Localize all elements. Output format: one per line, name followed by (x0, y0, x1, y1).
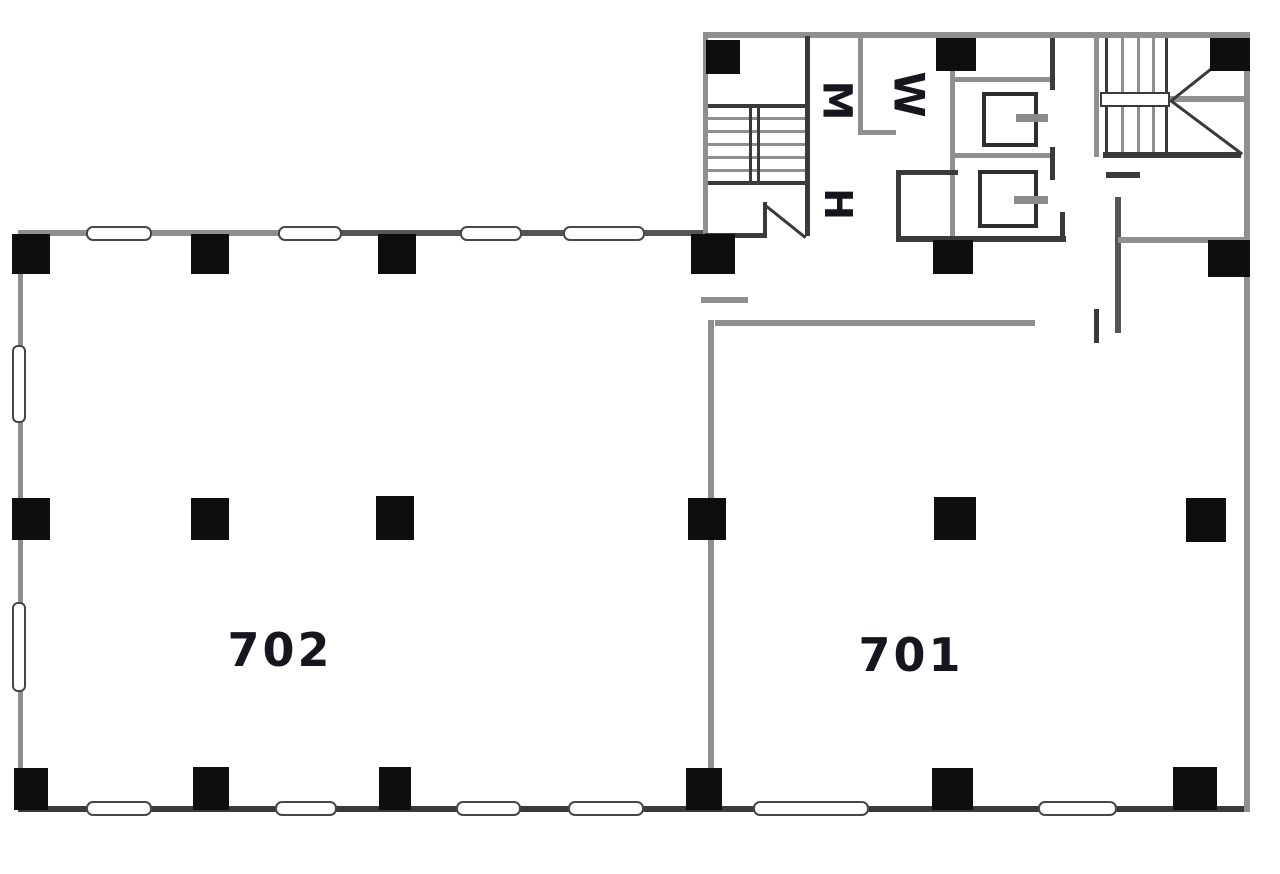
wall-segment (757, 104, 760, 185)
column (1210, 38, 1250, 71)
wall-segment (1060, 212, 1065, 242)
window (753, 801, 869, 816)
column (14, 768, 48, 810)
wall-segment (955, 153, 1053, 158)
room-701-label: 701 (711, 627, 1111, 683)
column (12, 498, 50, 540)
column (933, 240, 973, 274)
column (1186, 498, 1226, 542)
column (691, 234, 735, 274)
column (193, 767, 229, 810)
wall-segment (1094, 35, 1099, 157)
wall-segment (1094, 309, 1099, 343)
window (278, 226, 342, 241)
window (1038, 801, 1117, 816)
column (378, 234, 416, 274)
wall-segment (1103, 152, 1241, 158)
window (12, 602, 26, 692)
wall-segment (715, 320, 1035, 326)
window (568, 801, 644, 816)
womens-room-label: W (884, 0, 935, 394)
toilet-fixture (1016, 114, 1048, 122)
column (936, 38, 976, 71)
column (191, 234, 229, 274)
wall-segment (1106, 172, 1140, 178)
stair-landing-break (1100, 92, 1170, 107)
window (86, 226, 152, 241)
column (1208, 240, 1250, 277)
wall-segment (955, 77, 1053, 82)
column (379, 767, 411, 810)
toilet-fixture (1014, 196, 1048, 204)
room-702-label: 702 (80, 622, 480, 678)
wall-segment (1170, 96, 1246, 102)
wall-segment (1050, 38, 1055, 90)
wall-segment (1115, 197, 1121, 333)
column (688, 498, 726, 540)
stair-direction-line (764, 204, 806, 239)
window (12, 345, 26, 423)
window (456, 801, 521, 816)
utility-room-label: H (815, 0, 861, 504)
wall-segment (1244, 34, 1250, 812)
window (563, 226, 645, 241)
column (686, 768, 722, 810)
wall-segment (701, 297, 748, 303)
window (460, 226, 522, 241)
column (1173, 767, 1217, 810)
stair-direction-line (1169, 99, 1243, 155)
column (12, 234, 50, 274)
wall-segment (708, 320, 714, 772)
window (275, 801, 337, 816)
column (934, 497, 976, 540)
column (191, 498, 229, 540)
wall-segment (1050, 147, 1055, 180)
wall-segment (749, 104, 752, 185)
window (86, 801, 152, 816)
wall-segment (805, 36, 810, 236)
column (706, 40, 740, 74)
column (376, 496, 414, 540)
column (932, 768, 973, 810)
floor-plan: 702701MWH (0, 0, 1280, 874)
